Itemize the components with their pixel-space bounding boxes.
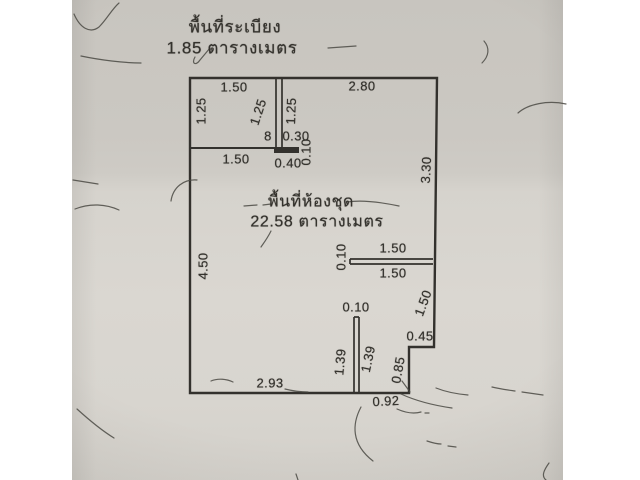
dimension-label: 1.50 [380,241,407,256]
dimension-label: 8 [264,129,272,144]
dimension-label: 1.50 [380,266,407,281]
unit-area-value: 22.58 ตารางเมตร [250,210,383,235]
label-layer: พื้นที่ระเบียง 1.85 ตารางเมตร พื้นที่ห้อ… [0,0,640,480]
dimension-label: 0.10 [343,300,370,315]
dimension-label: 0.92 [372,393,400,409]
dimension-label: 1.39 [331,348,348,376]
scanned-floorplan-photo: พื้นที่ระเบียง 1.85 ตารางเมตร พื้นที่ห้อ… [0,0,640,480]
dimension-label: 2.80 [349,79,376,94]
dimension-label: 1.50 [223,152,250,167]
dimension-label: 1.50 [221,80,248,95]
dimension-label: 3.30 [418,156,434,184]
dimension-label: 1.25 [247,97,270,127]
dimension-label: 1.25 [283,97,299,124]
balcony-area-value: 1.85 ตารางเมตร [167,35,298,62]
dimension-label: 1.25 [194,98,209,125]
dimension-label: 1.50 [411,288,434,318]
dimension-label: 2.93 [257,376,284,391]
dimension-label: 4.50 [196,253,211,280]
dimension-label: 0.85 [388,355,407,384]
dimension-label: 0.10 [334,244,349,271]
dimension-label: 0.40 [275,156,302,171]
dimension-label: 0.45 [407,329,434,344]
dimension-label: 1.39 [358,344,378,373]
